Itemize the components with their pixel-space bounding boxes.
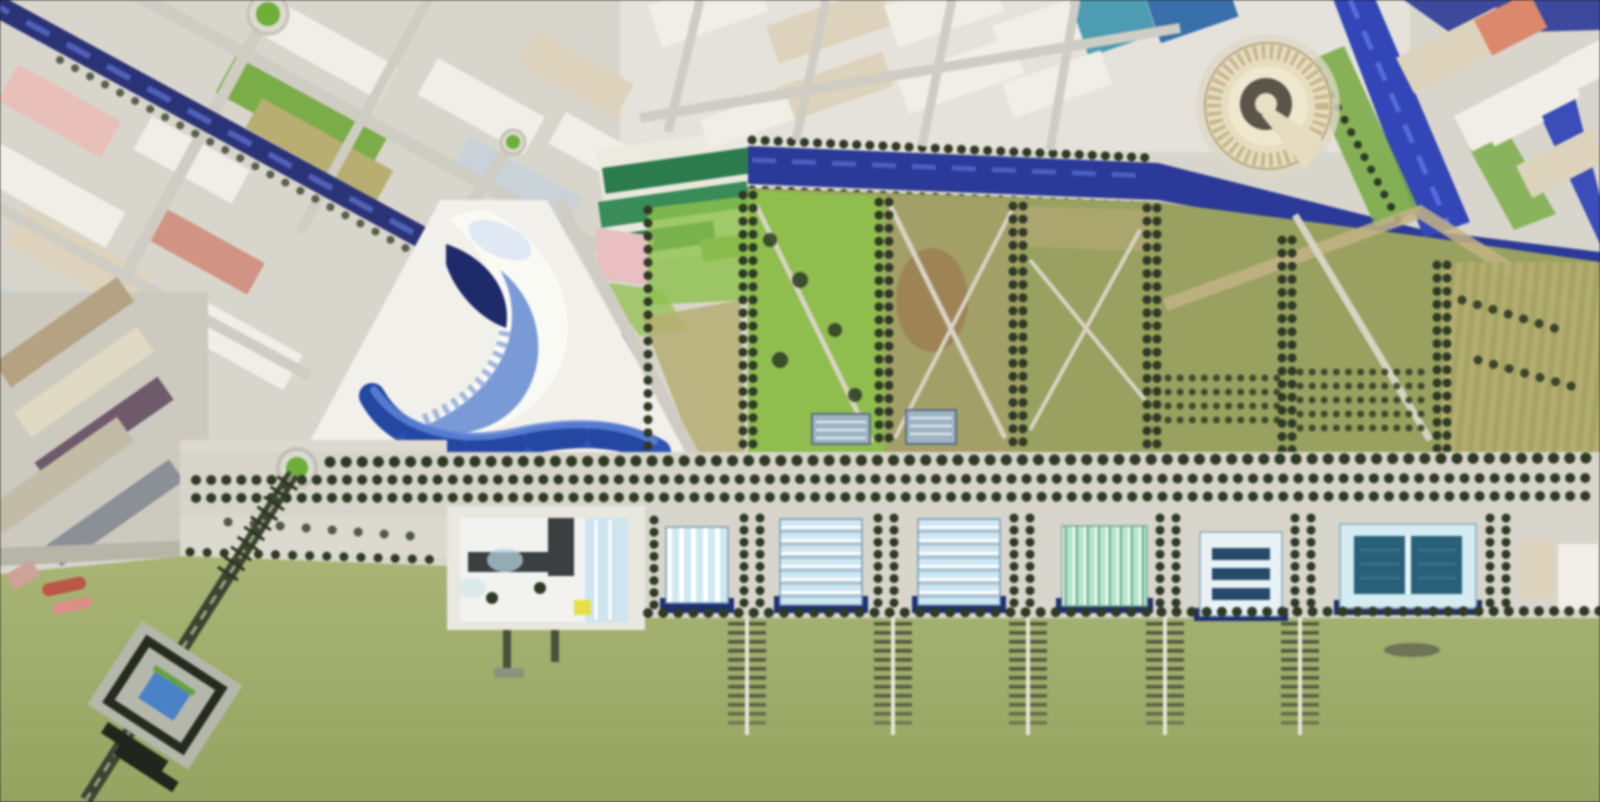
- pool-pavilion: [1340, 524, 1476, 608]
- exhibition-pavilions: [660, 519, 1598, 621]
- pavilion-hall-3: [918, 519, 1000, 605]
- tree-icon: [828, 323, 842, 337]
- jetty-platform: [494, 668, 524, 678]
- tree-icon: [763, 233, 777, 247]
- tree-icon: [772, 352, 788, 368]
- hall5-bar: [1212, 548, 1270, 560]
- museum-jetty: [551, 630, 559, 662]
- east-end-building: [1520, 540, 1554, 598]
- aerial-masterplan-image: [0, 0, 1600, 802]
- park-block-west: [648, 196, 748, 305]
- tree-icon: [792, 272, 808, 288]
- hall5-bar: [1212, 588, 1270, 600]
- museum-jetty: [503, 630, 511, 670]
- arena-court-center: [1255, 93, 1277, 115]
- masterplan-canvas: [0, 0, 1600, 802]
- park-orchard-east: [1442, 262, 1600, 452]
- roundabout-green-icon: [506, 135, 520, 149]
- museum-court-pool: [487, 548, 523, 572]
- museum-glass-wing: [585, 518, 628, 622]
- tree-icon: [486, 592, 498, 604]
- museum-court-pool: [458, 578, 486, 598]
- pool-lane-divider: [1405, 536, 1411, 594]
- arena-rotunda: [1196, 34, 1340, 178]
- museum-yellow-volume: [574, 600, 591, 615]
- industrial-waterfront: [0, 277, 208, 567]
- tree-icon: [534, 582, 546, 594]
- boat-grey: [1384, 643, 1440, 657]
- tree-icon: [848, 388, 862, 402]
- roundabout-mid: [501, 130, 525, 154]
- pavilion-hall-4: [1062, 526, 1147, 606]
- pavilion-hall-2: [780, 519, 862, 605]
- hall5-bar: [1212, 568, 1270, 580]
- roundabout-north: [248, 0, 288, 34]
- east-end-building: [1558, 544, 1598, 610]
- roundabout-green-icon: [256, 2, 280, 26]
- pavilion-hall-1: [666, 527, 728, 603]
